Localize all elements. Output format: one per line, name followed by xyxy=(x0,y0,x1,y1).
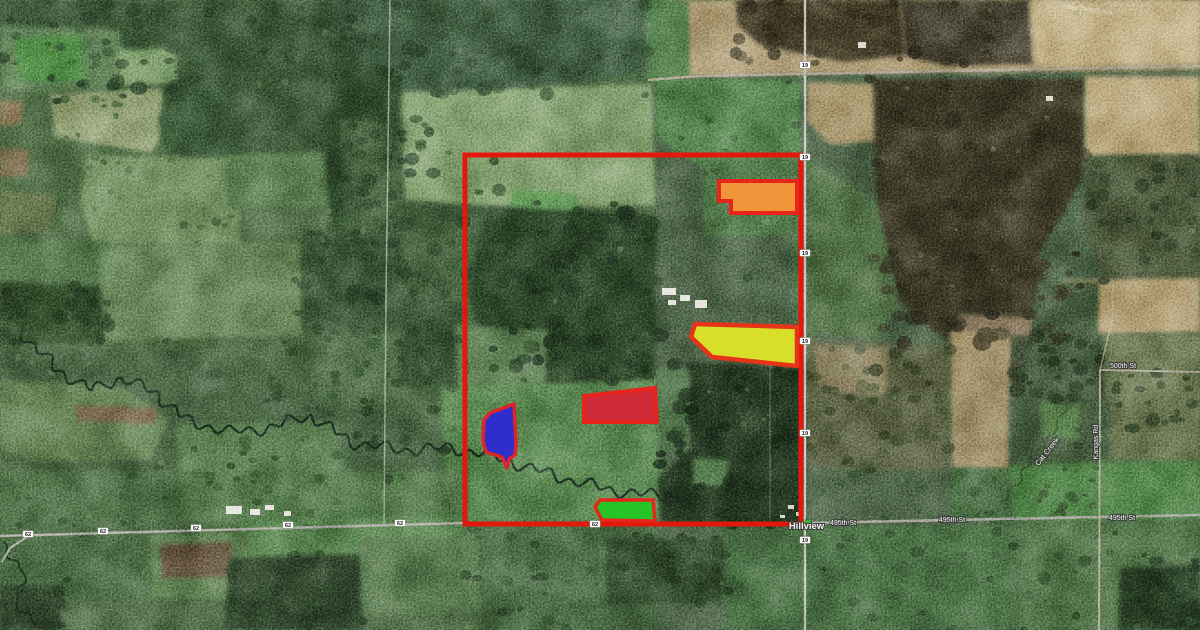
svg-text:19: 19 xyxy=(802,251,808,257)
svg-text:19: 19 xyxy=(802,538,808,544)
svg-text:62: 62 xyxy=(397,521,403,527)
svg-text:62: 62 xyxy=(100,529,106,535)
svg-text:62: 62 xyxy=(25,532,31,538)
svg-text:19: 19 xyxy=(802,431,808,437)
svg-text:495th St: 495th St xyxy=(830,520,856,527)
svg-text:19: 19 xyxy=(802,339,808,345)
svg-text:495th St: 495th St xyxy=(939,517,965,524)
svg-text:19: 19 xyxy=(802,155,808,161)
svg-text:62: 62 xyxy=(592,522,598,528)
svg-text:Kangas Rd: Kangas Rd xyxy=(1093,425,1100,460)
svg-text:62: 62 xyxy=(193,526,199,532)
svg-text:495th St: 495th St xyxy=(1109,515,1135,522)
svg-text:500th St: 500th St xyxy=(1110,363,1136,370)
svg-text:62: 62 xyxy=(285,523,291,529)
svg-text:19: 19 xyxy=(802,63,808,69)
